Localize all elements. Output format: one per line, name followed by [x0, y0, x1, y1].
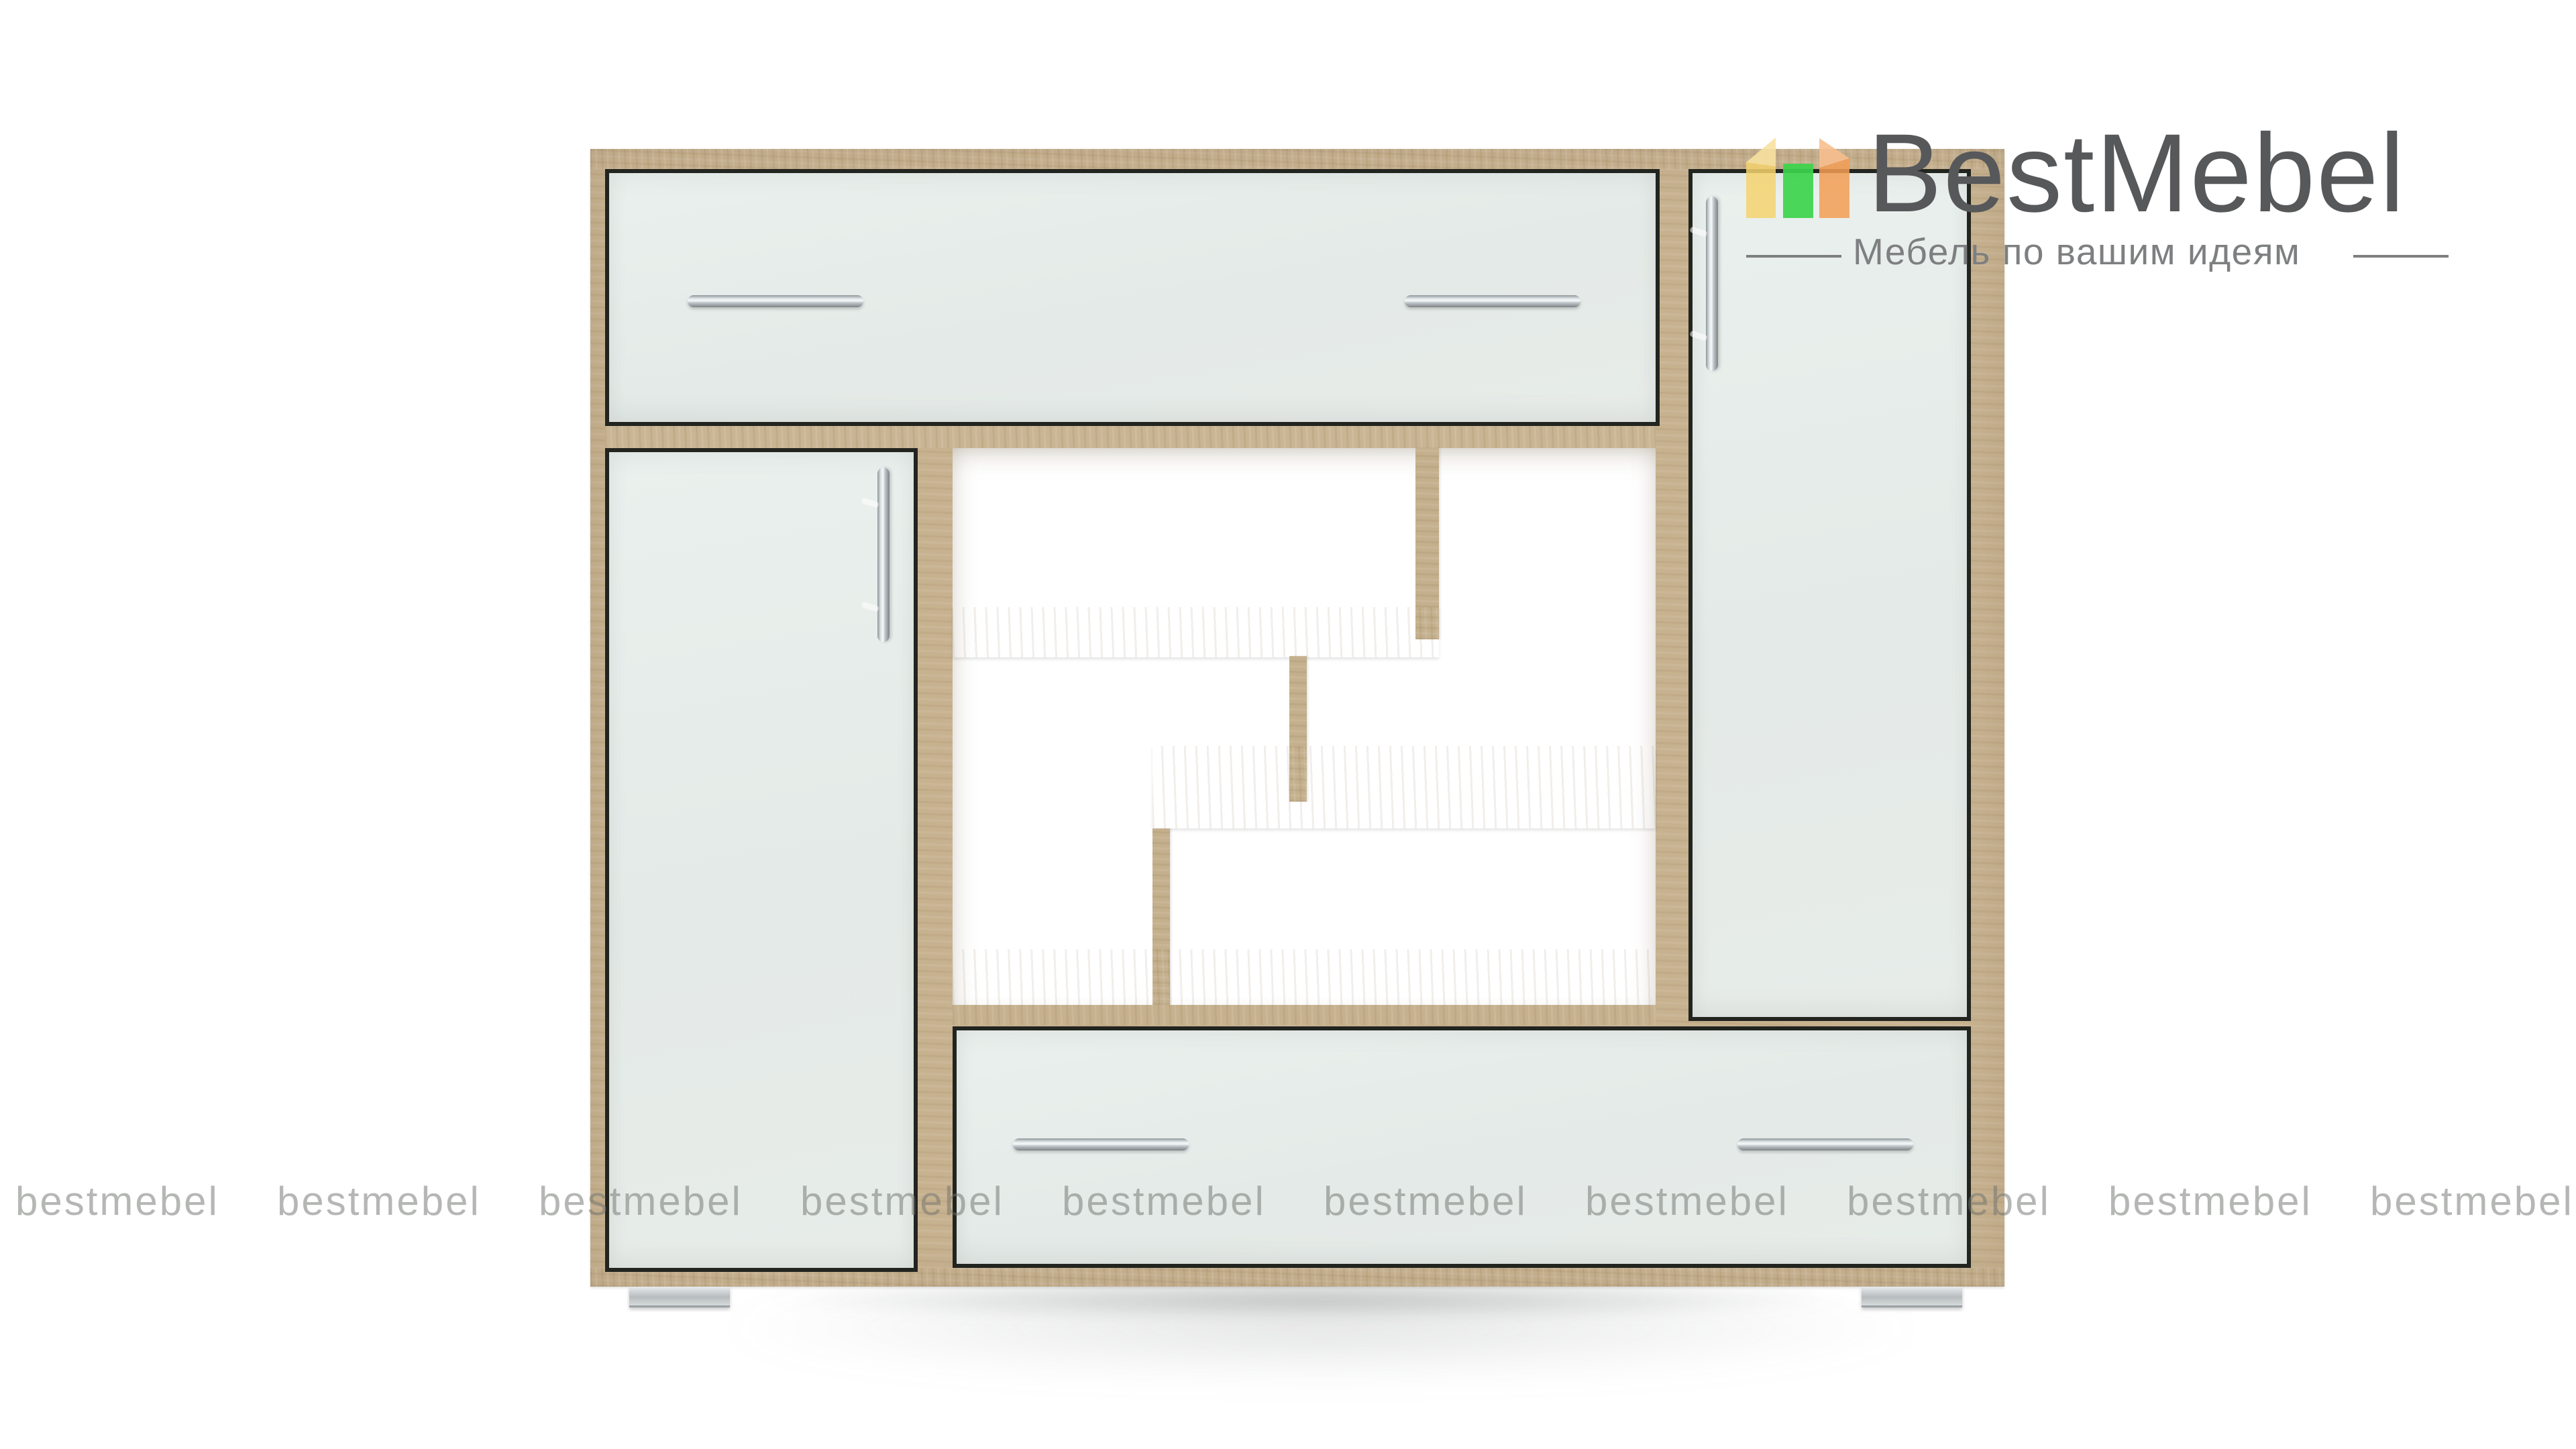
shelf-lower [1152, 746, 1656, 828]
left-door-handle [877, 468, 890, 642]
logo-bars-icon [1744, 136, 1851, 219]
watermark-text: bestmebel [1847, 1178, 2051, 1224]
watermark-text: bestmebel [2108, 1178, 2312, 1224]
sideboard-cabinet [590, 149, 2004, 1287]
watermark-text: bestmebel [800, 1178, 1004, 1224]
watermark-text: bestmebel [539, 1178, 743, 1224]
bottom-drawer-handle-right [1737, 1138, 1913, 1150]
cabinet-foot-left [629, 1287, 730, 1307]
watermark-text: bestmebel [15, 1178, 219, 1224]
watermark-text: bestmebel [1062, 1178, 1266, 1224]
top-drawer-handle-right [1405, 295, 1580, 307]
left-door-front [605, 448, 918, 1272]
shelf-floor-edge [953, 1005, 1656, 1025]
right-door-front [1688, 169, 1971, 1021]
watermark-text: bestmebel [2370, 1178, 2574, 1224]
top-drawer-handle-left [688, 295, 863, 307]
shelf-floor-top [953, 949, 1656, 1005]
tagline-dash-right [2353, 255, 2449, 258]
watermark-text: bestmebel [1585, 1178, 1789, 1224]
cabinet-middle-rail [605, 426, 1656, 448]
shelf-upper [953, 607, 1439, 657]
product-photo-stage: bestmebelbestmebelbestmebelbestmebelbest… [0, 0, 2576, 1449]
tagline-dash-left [1746, 255, 1841, 258]
brand-tagline: Мебель по вашим идеям [1853, 233, 2300, 270]
watermark-text: bestmebel [277, 1178, 481, 1224]
bottom-drawer-handle-left [1013, 1138, 1189, 1150]
cabinet-foot-right [1862, 1287, 1962, 1307]
brand-name: BestMebel [1868, 118, 2406, 229]
right-door-handle [1706, 197, 1718, 371]
watermark-text: bestmebel [1324, 1178, 1527, 1224]
